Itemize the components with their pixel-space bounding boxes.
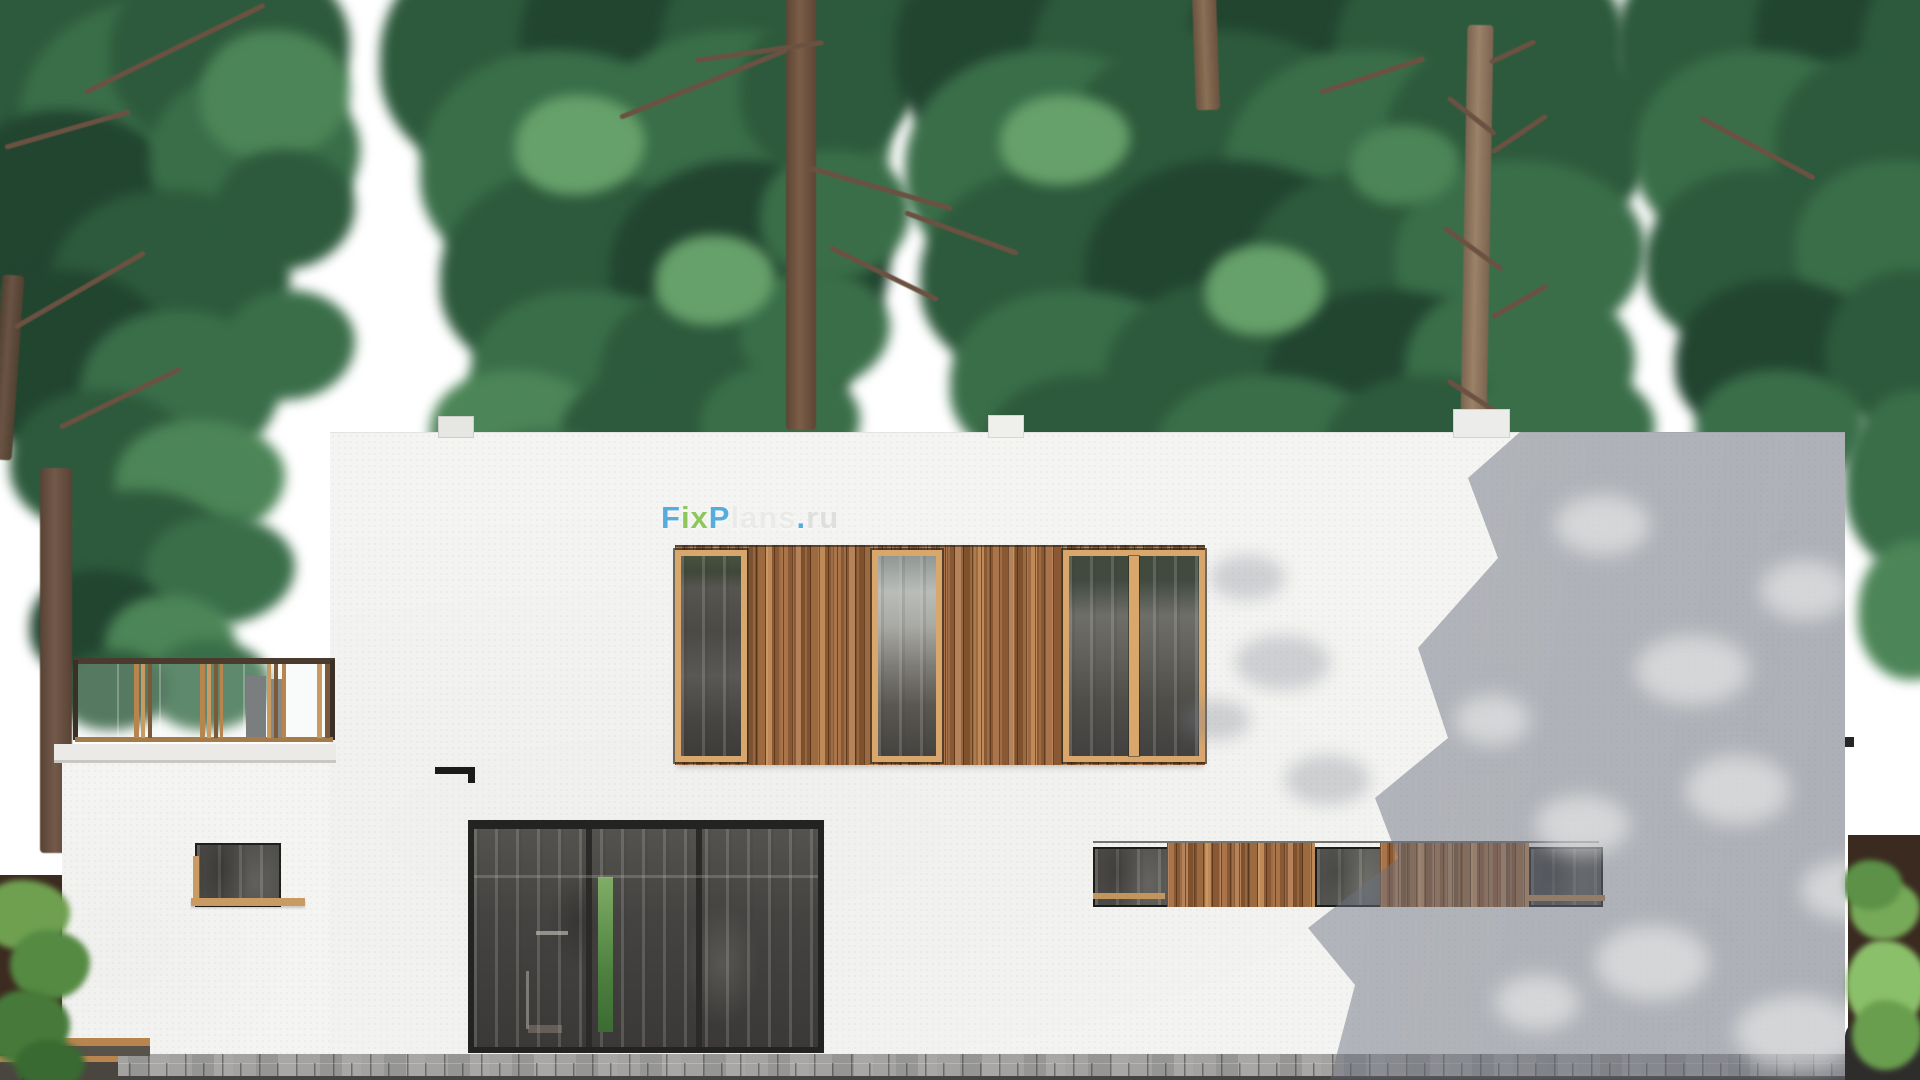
shadow-dapple xyxy=(1210,555,1285,600)
shadow-light-gap xyxy=(1535,795,1630,855)
shadow-dapple xyxy=(1235,635,1330,690)
shadow-light-gap xyxy=(1685,755,1790,825)
shadow-light-gap xyxy=(1635,635,1750,705)
shadow-light-gap xyxy=(1595,925,1710,1000)
shadow-light-gap xyxy=(1455,695,1530,745)
shadow-light-gap xyxy=(1555,495,1650,555)
shadow-light-gap xyxy=(1495,975,1580,1030)
architectural-render-scene: FixPlans.ru xyxy=(0,0,1920,1080)
shadow-dapple xyxy=(1285,755,1370,805)
shadow-light-gap xyxy=(1760,560,1850,620)
shadow-light-gap xyxy=(1735,995,1860,1070)
shadow-dapple xyxy=(1180,700,1250,740)
